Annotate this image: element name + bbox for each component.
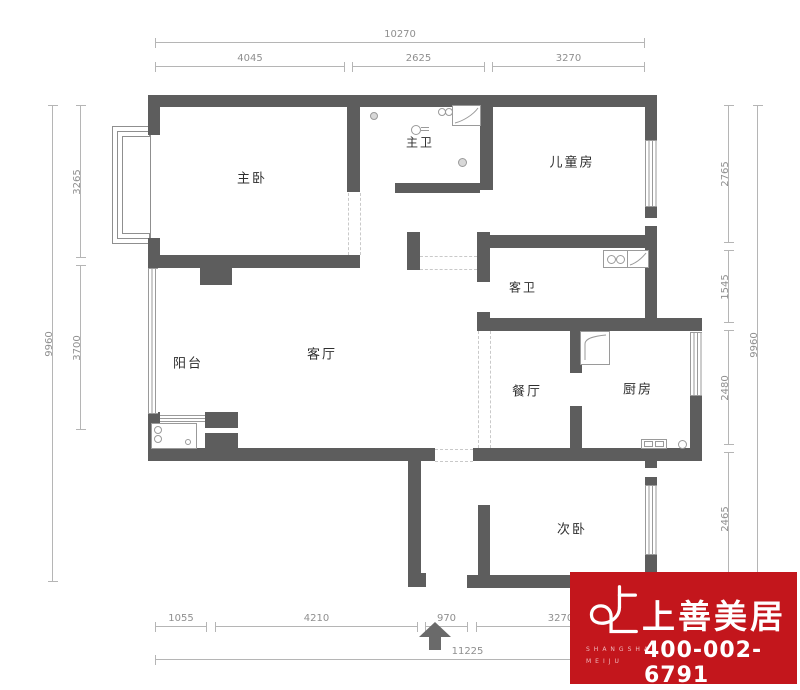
sink-basin-icon [616,255,625,264]
wall-gap [205,428,238,433]
wall-segment [645,461,657,468]
dim-label: 9960 [749,332,760,357]
bay-window-frame [122,136,151,234]
room-label-kids-room: 儿童房 [549,152,594,171]
wall-segment [407,232,420,270]
shower-icon [627,250,649,268]
room-label-second-bedroom: 次卧 [557,519,587,538]
stove-icon [641,439,667,449]
dim-label: 4210 [304,613,329,624]
floor-drain-icon [458,158,467,167]
room-label-kitchen: 厨房 [623,379,653,398]
arrow-stem [429,637,441,650]
dim-right-seg2: 1545 [728,250,729,323]
dim-label: 2465 [720,506,731,531]
wall-segment [200,268,232,285]
sink-basin-icon [607,255,616,264]
phone-number: 400-002-6791 [644,638,797,688]
dim-label: 3700 [72,335,83,360]
washer-icon [151,423,197,449]
wall-segment [395,183,480,193]
logo: 上善美居 SHANGSHAN MEIJU 400-002-6791 [570,572,797,684]
dim-bottom-seg2: 4210 [215,626,418,627]
dim-top-seg3: 3270 [492,66,645,67]
wall-segment [148,95,657,107]
dim-label: 1055 [168,613,193,624]
dim-label: 10270 [384,29,416,40]
dim-label: 3270 [556,53,581,64]
room-label-dining-room: 餐厅 [512,381,542,400]
room-label-guest-bath: 客卫 [509,279,537,296]
fridge-icon [580,331,610,365]
dim-label: 3265 [72,169,83,194]
wall-segment [478,505,490,577]
brand-name: 上善美居 [642,590,786,638]
window [690,332,702,396]
sink-icon [603,250,629,268]
wall-segment [473,448,702,461]
dim-label: 2480 [720,375,731,400]
dim-top-seg2: 2625 [352,66,485,67]
room-label-balcony: 阳台 [173,353,203,372]
shower-icon [452,105,481,126]
room-label-living-room: 客厅 [307,344,337,363]
dim-label: 2625 [406,53,431,64]
room-label-master-bedroom: 主卧 [237,168,267,187]
wall-segment [570,406,582,449]
wall-segment [408,461,421,573]
dim-right-seg3: 2480 [728,330,729,445]
floor-drain-icon [370,112,378,120]
sink-icon [678,440,687,449]
wall-segment [148,448,435,461]
wall-segment [408,573,426,587]
wall-segment [645,95,657,140]
dim-label: 1545 [720,274,731,299]
dim-top-seg1: 4045 [155,66,345,67]
arrow-head [419,622,451,637]
door-opening [478,331,491,448]
wall-segment [148,255,360,268]
knob-icon [154,435,162,443]
balcony-window [148,268,158,414]
door-opening [420,256,477,270]
sink-icon [445,108,453,116]
dim-top-total: 10270 [155,42,645,43]
dim-right-seg1: 2765 [728,105,729,243]
dim-label: 11225 [452,646,484,657]
knob-icon [185,439,191,445]
entrance-arrow-icon [419,622,451,637]
dim-label: 4045 [237,53,262,64]
dim-left-seg2: 3700 [80,265,81,430]
wall-segment [480,95,493,190]
room-label-master-bath: 主卫 [406,134,434,151]
wall-segment [490,235,657,248]
dim-label: 2765 [720,161,731,186]
dim-label: 9960 [44,331,55,356]
bay-window [112,126,150,244]
wall-segment [347,95,360,192]
dim-left-total: 9960 [52,105,53,582]
brand-monogram-icon [584,582,640,640]
door-opening [435,449,473,462]
knob-icon [154,426,162,434]
wall-segment [477,232,490,282]
dim-right-seg4: 2465 [728,452,729,585]
brand-latin-line2: MEIJU [586,658,623,665]
toilet-icon [421,127,429,133]
window [645,485,657,555]
dim-left-seg1: 3265 [80,105,81,258]
burner-icon [644,441,653,447]
dim-right-total: 9960 [757,105,758,585]
wall-segment [645,226,657,318]
window [160,415,205,423]
window [645,140,657,207]
floor-plan: 10270 4045 2625 3270 9960 3265 3700 2765… [0,0,800,690]
wall-segment [645,477,657,485]
dim-bottom-seg1: 1055 [155,626,207,627]
burner-icon [655,441,664,447]
wall-segment [477,318,702,331]
door-opening [348,193,361,255]
wall-segment [148,95,160,135]
